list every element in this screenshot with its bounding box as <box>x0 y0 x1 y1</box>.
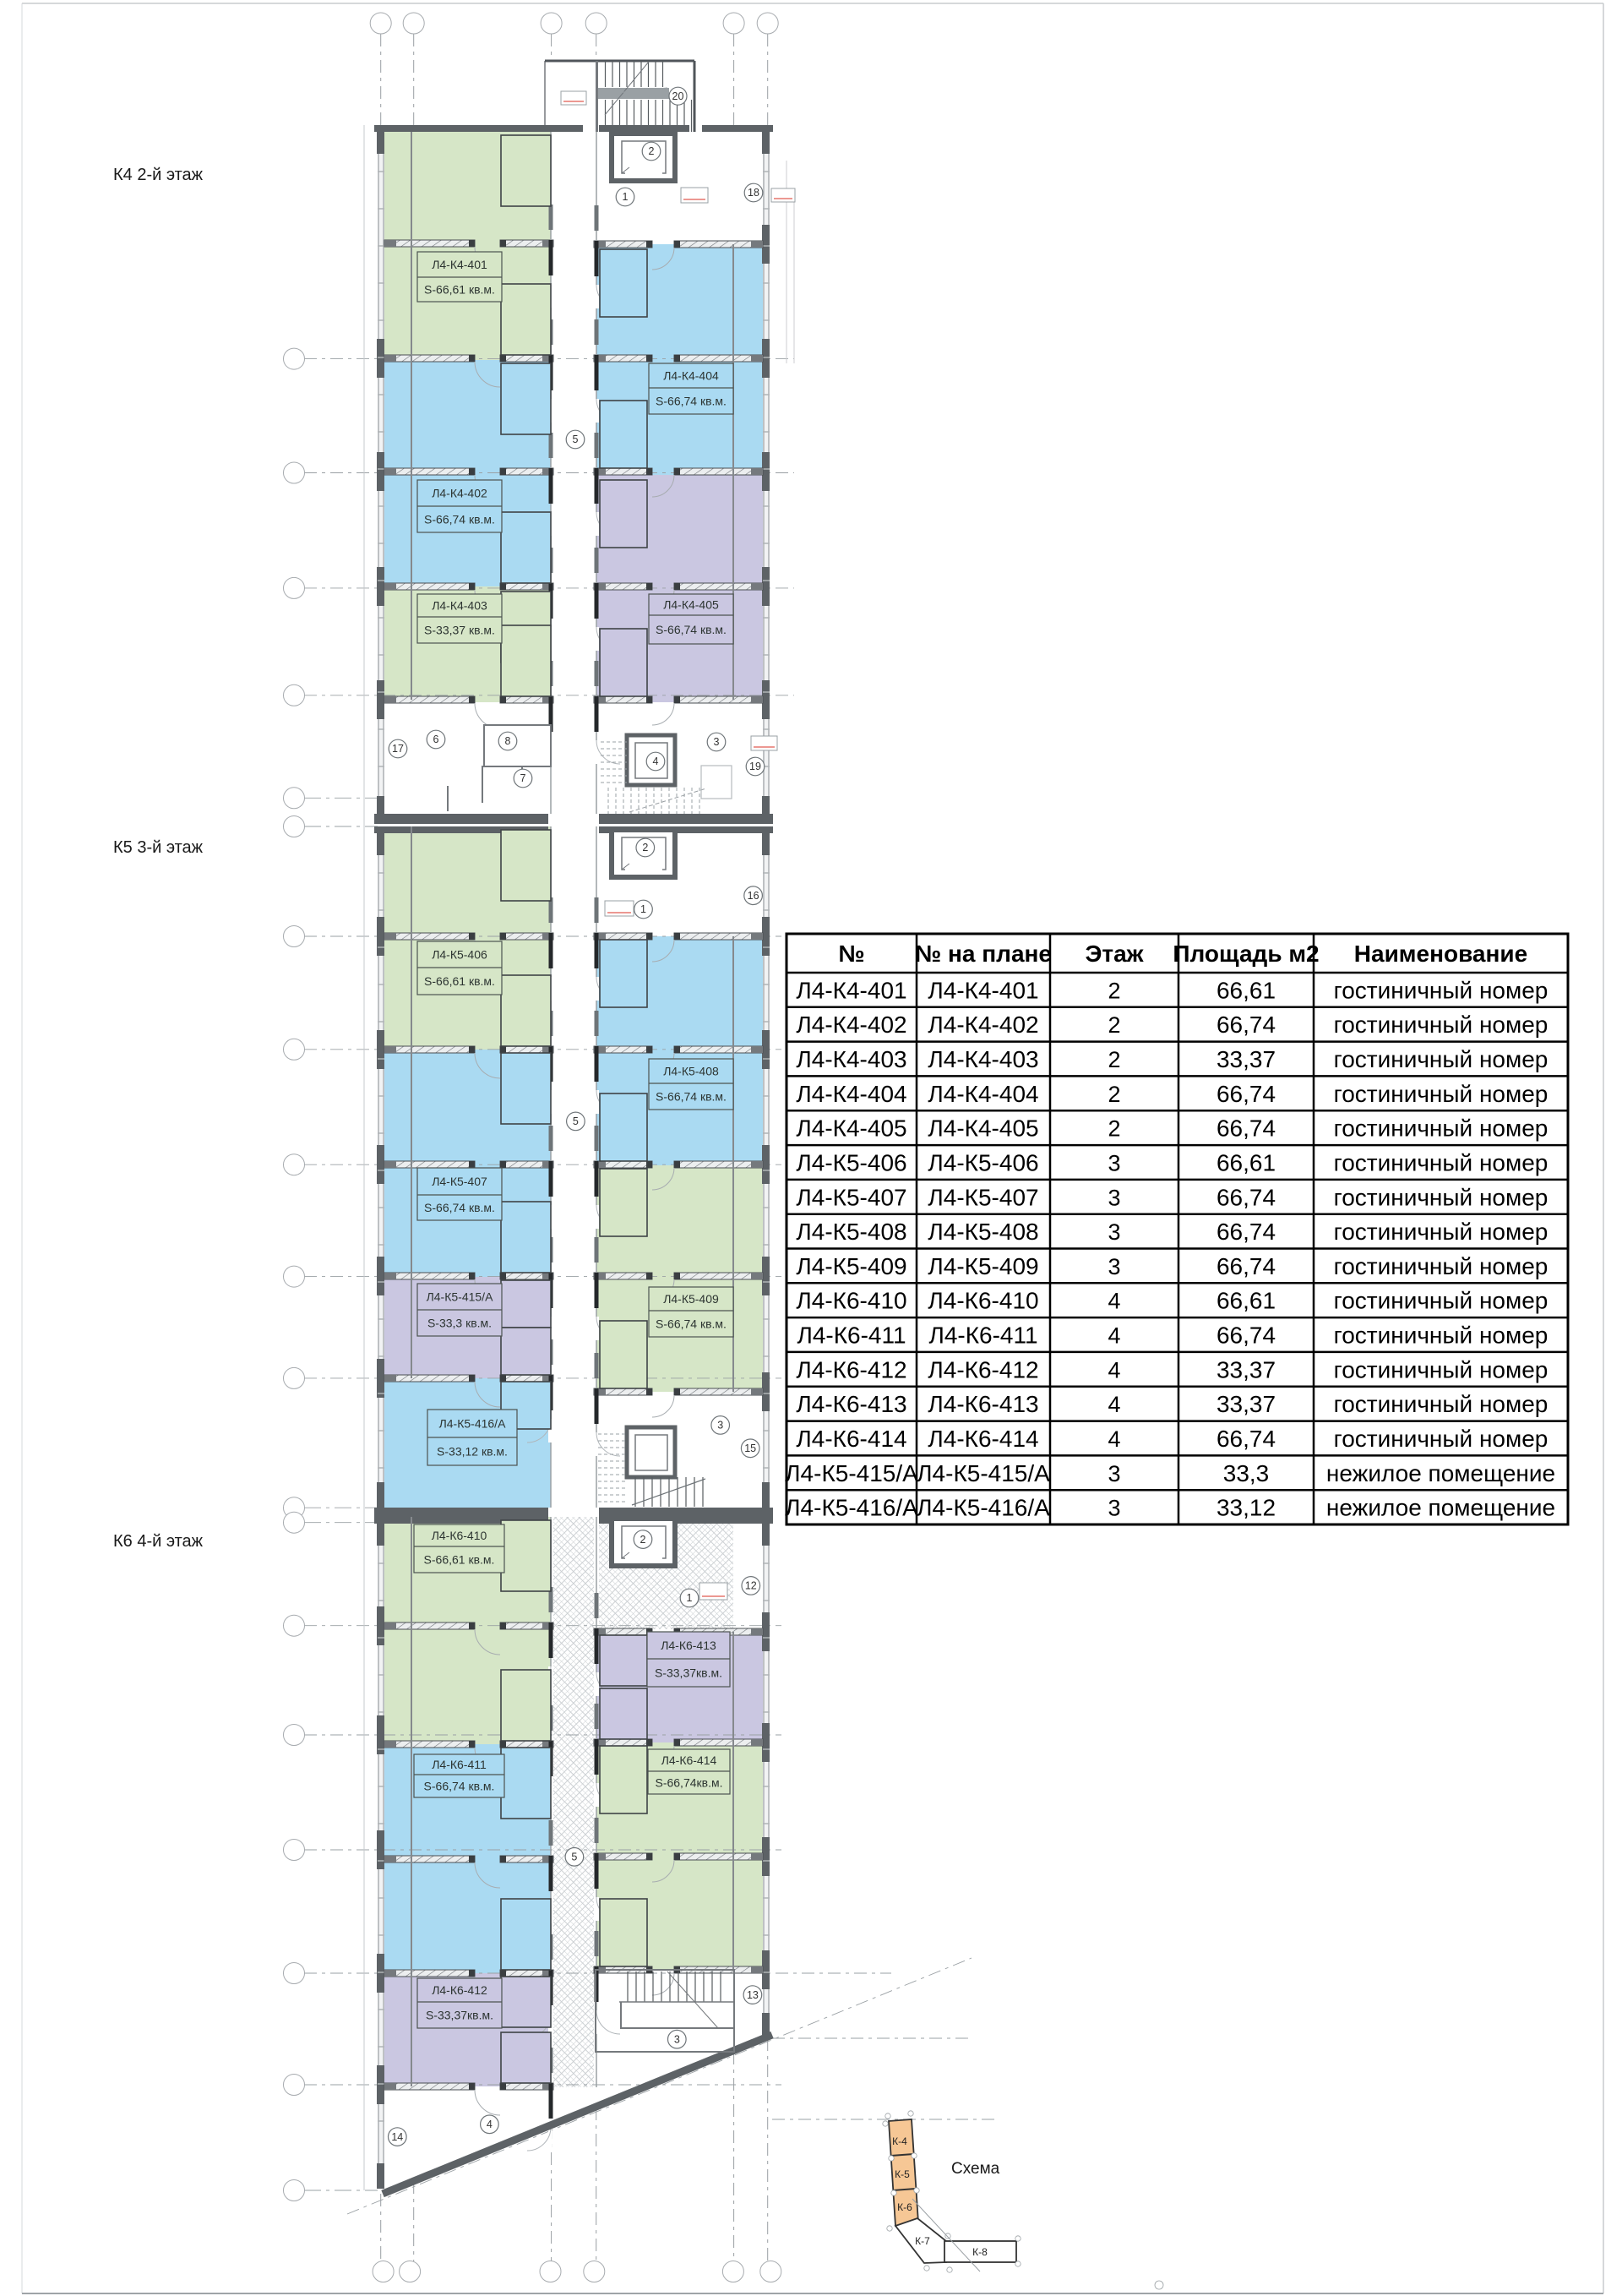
svg-text:Л4-К5-416/А: Л4-К5-416/А <box>785 1495 918 1521</box>
svg-text:Л4-К5-409: Л4-К5-409 <box>928 1253 1038 1279</box>
svg-text:Схема: Схема <box>951 2160 1000 2178</box>
svg-text:1: 1 <box>623 191 629 203</box>
svg-text:18: 18 <box>748 187 759 199</box>
svg-text:S-66,74 кв.м.: S-66,74 кв.м. <box>656 395 727 408</box>
svg-text:Л4-К5-415/А: Л4-К5-415/А <box>917 1460 1050 1486</box>
svg-text:Л4-К4-404: Л4-К4-404 <box>663 369 719 383</box>
svg-text:Л4-К6-414: Л4-К6-414 <box>928 1426 1038 1452</box>
svg-text:Л4-К4-404: Л4-К4-404 <box>796 1081 906 1107</box>
svg-text:Л4-К6-411: Л4-К6-411 <box>928 1323 1037 1349</box>
svg-text:К4 2-й этаж: К4 2-й этаж <box>113 166 204 184</box>
svg-text:нежилое помещение: нежилое помещение <box>1326 1460 1555 1486</box>
svg-text:Л4-К6-411: Л4-К6-411 <box>432 1758 487 1771</box>
svg-text:3: 3 <box>1108 1254 1120 1279</box>
svg-text:Л4-К4-405: Л4-К4-405 <box>663 598 719 612</box>
svg-text:S-66,74 кв.м.: S-66,74 кв.м. <box>424 1201 495 1214</box>
svg-text:гостиничный номер: гостиничный номер <box>1334 1219 1549 1245</box>
svg-text:14: 14 <box>391 2131 403 2143</box>
svg-text:Л4-К6-413: Л4-К6-413 <box>928 1391 1038 1417</box>
svg-text:4: 4 <box>487 2119 493 2130</box>
svg-text:3: 3 <box>1108 1185 1120 1210</box>
svg-text:Л4-К5-415/А: Л4-К5-415/А <box>427 1290 493 1304</box>
svg-text:гостиничный номер: гостиничный номер <box>1334 1184 1549 1210</box>
svg-text:S-33,37 кв.м.: S-33,37 кв.м. <box>424 624 495 637</box>
svg-text:2: 2 <box>1108 1012 1120 1038</box>
svg-text:К5 3-й этаж: К5 3-й этаж <box>113 838 204 857</box>
svg-text:S-66,61 кв.м.: S-66,61 кв.м. <box>424 974 495 988</box>
svg-text:гостиничный номер: гостиничный номер <box>1334 1115 1549 1142</box>
svg-text:3: 3 <box>1108 1461 1120 1486</box>
svg-text:2: 2 <box>640 1534 646 1546</box>
svg-text:5: 5 <box>573 434 579 445</box>
svg-text:66,74: 66,74 <box>1216 1115 1276 1142</box>
svg-text:№: № <box>838 941 864 967</box>
svg-text:S-33,37кв.м.: S-33,37кв.м. <box>426 2009 493 2022</box>
svg-text:гостиничный номер: гостиничный номер <box>1334 977 1549 1003</box>
svg-text:Л4-К6-410: Л4-К6-410 <box>432 1529 487 1542</box>
svg-text:17: 17 <box>392 743 404 755</box>
svg-text:Л4-К4-402: Л4-К4-402 <box>432 487 487 500</box>
svg-text:Л4-К6-414: Л4-К6-414 <box>661 1753 717 1767</box>
svg-text:2: 2 <box>649 145 655 157</box>
svg-text:Л4-К5-407: Л4-К5-407 <box>432 1175 487 1188</box>
svg-text:К-4: К-4 <box>892 2135 907 2147</box>
svg-text:66,61: 66,61 <box>1216 977 1276 1003</box>
svg-text:К-6: К-6 <box>897 2201 912 2213</box>
svg-text:Площадь м2: Площадь м2 <box>1173 941 1319 967</box>
svg-text:33,37: 33,37 <box>1216 1046 1276 1072</box>
svg-text:Л4-К4-402: Л4-К4-402 <box>928 1012 1038 1038</box>
svg-text:S-66,74 кв.м.: S-66,74 кв.м. <box>656 1317 727 1331</box>
svg-text:8: 8 <box>505 735 511 747</box>
svg-text:S-33,3 кв.м.: S-33,3 кв.м. <box>427 1317 492 1330</box>
svg-text:3: 3 <box>674 2033 680 2045</box>
svg-text:5: 5 <box>573 1115 579 1127</box>
svg-text:3: 3 <box>1108 1219 1120 1245</box>
svg-text:33,3: 33,3 <box>1223 1460 1270 1486</box>
svg-text:66,61: 66,61 <box>1216 1288 1276 1314</box>
svg-text:3: 3 <box>1108 1151 1120 1176</box>
svg-text:гостиничный номер: гостиничный номер <box>1334 1253 1549 1279</box>
svg-text:Л4-К6-410: Л4-К6-410 <box>796 1288 906 1314</box>
svg-text:4: 4 <box>1108 1426 1120 1452</box>
svg-text:33,37: 33,37 <box>1216 1391 1276 1417</box>
svg-text:Л4-К4-403: Л4-К4-403 <box>796 1046 906 1072</box>
svg-text:4: 4 <box>1108 1392 1120 1417</box>
svg-text:12: 12 <box>745 1580 757 1592</box>
svg-text:Л4-К5-406: Л4-К5-406 <box>928 1150 1038 1176</box>
svg-text:16: 16 <box>748 890 759 902</box>
svg-text:Л4-К4-405: Л4-К4-405 <box>928 1115 1038 1142</box>
svg-text:Л4-К4-401: Л4-К4-401 <box>796 977 906 1003</box>
svg-text:3: 3 <box>717 1420 723 1432</box>
svg-text:Л4-К5-409: Л4-К5-409 <box>796 1253 906 1279</box>
svg-text:5: 5 <box>571 1852 577 1863</box>
svg-text:S-33,37кв.м.: S-33,37кв.м. <box>655 1666 722 1680</box>
svg-text:S-66,74 кв.м.: S-66,74 кв.м. <box>656 623 727 636</box>
svg-text:Л4-К6-413: Л4-К6-413 <box>796 1391 906 1417</box>
svg-text:Л4-К5-408: Л4-К5-408 <box>663 1065 719 1078</box>
svg-text:Л4-К6-412: Л4-К6-412 <box>928 1356 1038 1383</box>
svg-text:Л4-К5-409: Л4-К5-409 <box>663 1292 719 1306</box>
svg-text:нежилое помещение: нежилое помещение <box>1326 1495 1555 1521</box>
svg-text:Л4-К4-403: Л4-К4-403 <box>928 1046 1038 1072</box>
svg-text:S-66,61 кв.м.: S-66,61 кв.м. <box>424 1553 495 1567</box>
svg-text:Л4-К6-411: Л4-К6-411 <box>797 1323 906 1349</box>
svg-text:Л4-К5-408: Л4-К5-408 <box>796 1219 906 1245</box>
svg-text:К-5: К-5 <box>895 2168 910 2180</box>
svg-text:Л4-К6-414: Л4-К6-414 <box>796 1426 906 1452</box>
svg-text:7: 7 <box>520 772 526 784</box>
svg-text:гостиничный номер: гостиничный номер <box>1334 1081 1549 1107</box>
svg-text:6: 6 <box>433 734 439 745</box>
svg-text:19: 19 <box>749 761 761 772</box>
svg-text:33,12: 33,12 <box>1216 1495 1276 1521</box>
svg-text:Л4-К6-412: Л4-К6-412 <box>796 1356 906 1383</box>
svg-text:Л4-К6-413: Л4-К6-413 <box>661 1639 716 1652</box>
svg-text:Л4-К5-416/А: Л4-К5-416/А <box>917 1495 1050 1521</box>
svg-text:Л4-К4-402: Л4-К4-402 <box>796 1012 906 1038</box>
svg-text:33,37: 33,37 <box>1216 1356 1276 1383</box>
svg-text:66,74: 66,74 <box>1216 1323 1276 1349</box>
svg-text:66,74: 66,74 <box>1216 1219 1276 1245</box>
svg-text:3: 3 <box>1108 1496 1120 1521</box>
svg-text:Л4-К6-410: Л4-К6-410 <box>928 1288 1038 1314</box>
svg-text:2: 2 <box>1108 1116 1120 1142</box>
svg-text:Л4-К5-407: Л4-К5-407 <box>928 1184 1038 1210</box>
svg-text:гостиничный номер: гостиничный номер <box>1334 1426 1549 1452</box>
svg-text:4: 4 <box>653 755 659 767</box>
svg-text:66,74: 66,74 <box>1216 1012 1276 1038</box>
svg-text:гостиничный номер: гостиничный номер <box>1334 1323 1549 1349</box>
svg-text:гостиничный номер: гостиничный номер <box>1334 1012 1549 1038</box>
svg-text:S-66,74кв.м.: S-66,74кв.м. <box>655 1776 722 1790</box>
svg-text:Л4-К5-406: Л4-К5-406 <box>796 1150 906 1176</box>
svg-text:Л4-К5-408: Л4-К5-408 <box>928 1219 1038 1245</box>
svg-text:К6 4-й этаж: К6 4-й этаж <box>113 1532 204 1551</box>
svg-text:Л4-К6-412: Л4-К6-412 <box>432 1983 487 1997</box>
svg-text:гостиничный номер: гостиничный номер <box>1334 1391 1549 1417</box>
svg-text:Л4-К4-401: Л4-К4-401 <box>432 258 487 271</box>
svg-text:№ на плане: № на плане <box>915 941 1052 967</box>
svg-text:гостиничный номер: гостиничный номер <box>1334 1150 1549 1176</box>
svg-text:Л4-К5-416/А: Л4-К5-416/А <box>439 1417 506 1431</box>
svg-text:гостиничный номер: гостиничный номер <box>1334 1288 1549 1314</box>
svg-text:Л4-К4-403: Л4-К4-403 <box>432 599 487 613</box>
svg-text:S-66,74 кв.м.: S-66,74 кв.м. <box>424 1780 495 1793</box>
svg-text:К-8: К-8 <box>972 2246 988 2258</box>
svg-text:66,74: 66,74 <box>1216 1081 1276 1107</box>
svg-text:S-66,61 кв.м.: S-66,61 кв.м. <box>424 283 495 297</box>
svg-text:К-7: К-7 <box>915 2235 930 2247</box>
svg-text:66,74: 66,74 <box>1216 1253 1276 1279</box>
svg-text:20: 20 <box>672 90 684 102</box>
svg-text:Л4-К5-415/А: Л4-К5-415/А <box>785 1460 918 1486</box>
svg-text:Наименование: Наименование <box>1354 941 1527 967</box>
svg-text:Л4-К5-406: Л4-К5-406 <box>432 948 487 962</box>
svg-text:2: 2 <box>642 842 648 854</box>
svg-text:13: 13 <box>747 1989 759 2001</box>
svg-text:1: 1 <box>687 1592 693 1604</box>
svg-text:3: 3 <box>714 736 720 748</box>
svg-text:гостиничный номер: гостиничный номер <box>1334 1356 1549 1383</box>
svg-text:S-66,74 кв.м.: S-66,74 кв.м. <box>424 513 495 526</box>
svg-text:66,74: 66,74 <box>1216 1426 1276 1452</box>
svg-text:Л4-К4-405: Л4-К4-405 <box>796 1115 906 1142</box>
svg-text:гостиничный номер: гостиничный номер <box>1334 1046 1549 1072</box>
svg-text:Этаж: Этаж <box>1085 941 1144 967</box>
svg-text:S-33,12 кв.м.: S-33,12 кв.м. <box>437 1445 508 1459</box>
svg-text:2: 2 <box>1108 978 1120 1003</box>
svg-text:15: 15 <box>744 1442 756 1454</box>
svg-text:2: 2 <box>1108 1047 1120 1072</box>
svg-text:4: 4 <box>1108 1323 1120 1349</box>
svg-text:Л4-К4-401: Л4-К4-401 <box>928 977 1038 1003</box>
svg-text:Л4-К4-404: Л4-К4-404 <box>928 1081 1038 1107</box>
svg-text:4: 4 <box>1108 1289 1120 1314</box>
svg-text:Л4-К5-407: Л4-К5-407 <box>796 1184 906 1210</box>
svg-text:1: 1 <box>640 903 646 915</box>
svg-text:66,61: 66,61 <box>1216 1150 1276 1176</box>
svg-text:4: 4 <box>1108 1357 1120 1383</box>
svg-text:2: 2 <box>1108 1082 1120 1107</box>
svg-text:S-66,74 кв.м.: S-66,74 кв.м. <box>656 1090 727 1104</box>
svg-text:66,74: 66,74 <box>1216 1184 1276 1210</box>
